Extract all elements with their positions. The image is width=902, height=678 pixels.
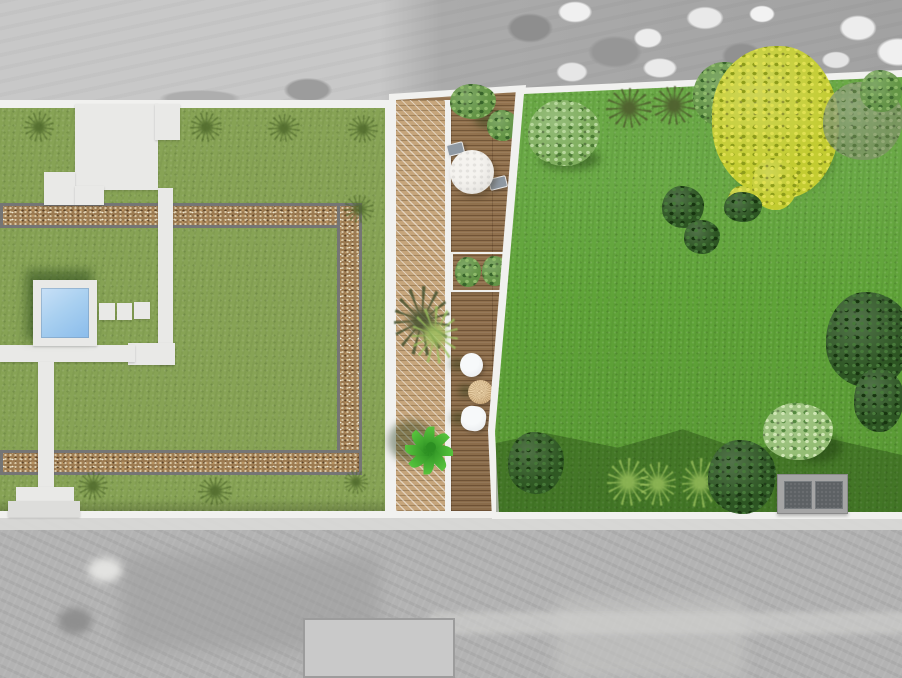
- grass-tuft: [348, 115, 378, 143]
- grass-tuft: [344, 470, 368, 494]
- stepping-stone-2: [117, 303, 132, 320]
- grass-tuft: [268, 114, 300, 142]
- shed-door-panel: [784, 481, 812, 509]
- grass-tuft: [190, 112, 222, 142]
- bed-foliage: [508, 432, 564, 494]
- grass-tuft: [78, 472, 108, 500]
- small-green-bush: [860, 70, 902, 112]
- garden-storage-shed: [777, 474, 848, 514]
- walkway-horizontal-pool: [0, 345, 135, 362]
- patio-terrace: [75, 104, 158, 190]
- leafy-bush: [708, 440, 776, 514]
- dark-bush: [684, 220, 720, 254]
- dark-bush: [724, 192, 762, 222]
- garden-steps-lower: [8, 501, 80, 517]
- shed-door-panel: [815, 481, 843, 509]
- gravel-path-bottom: [0, 450, 362, 475]
- garden-plan-rendering: [0, 0, 902, 678]
- walkway-vertical-east: [158, 188, 173, 365]
- planter-shrub: [455, 257, 481, 287]
- side-stool-white: [460, 353, 483, 377]
- variegated-shrub: [763, 403, 833, 460]
- potted-plant: [403, 418, 459, 476]
- aerial-photo-building-roof: [303, 618, 455, 678]
- patio-step-left: [44, 172, 75, 205]
- grass-tuft: [198, 477, 232, 505]
- gravel-path-right: [337, 203, 362, 475]
- aerial-photo-light-patch: [555, 598, 745, 678]
- bed-grass: [640, 462, 676, 506]
- spiky-shrub: [652, 86, 696, 125]
- stepping-stone-3: [134, 302, 150, 319]
- walkway-vertical-south: [38, 362, 54, 490]
- plant-center: [426, 442, 436, 452]
- pool-water: [41, 288, 89, 338]
- side-table-rattan: [468, 380, 493, 404]
- round-dining-table: [450, 150, 494, 194]
- corner-foliage: [854, 368, 902, 432]
- garden-steps-upper: [16, 487, 74, 501]
- grass-tuft: [344, 195, 374, 223]
- gravel-path-top: [0, 203, 358, 228]
- deck-shrub: [450, 84, 496, 119]
- aerial-photo-dark-spot: [58, 608, 92, 634]
- spiky-shrub: [606, 88, 652, 128]
- ornamental-grass: [412, 306, 458, 364]
- stepping-stone-1: [99, 303, 115, 320]
- walkway-junction-pad: [128, 343, 175, 365]
- grass-tuft: [24, 112, 54, 142]
- dappled-tree: [528, 100, 600, 166]
- patio-terrace-annex: [155, 104, 180, 140]
- aerial-photo-light-spot: [88, 558, 122, 582]
- patio-step-bottom: [75, 186, 104, 205]
- aerial-photo-light-band: [430, 612, 902, 634]
